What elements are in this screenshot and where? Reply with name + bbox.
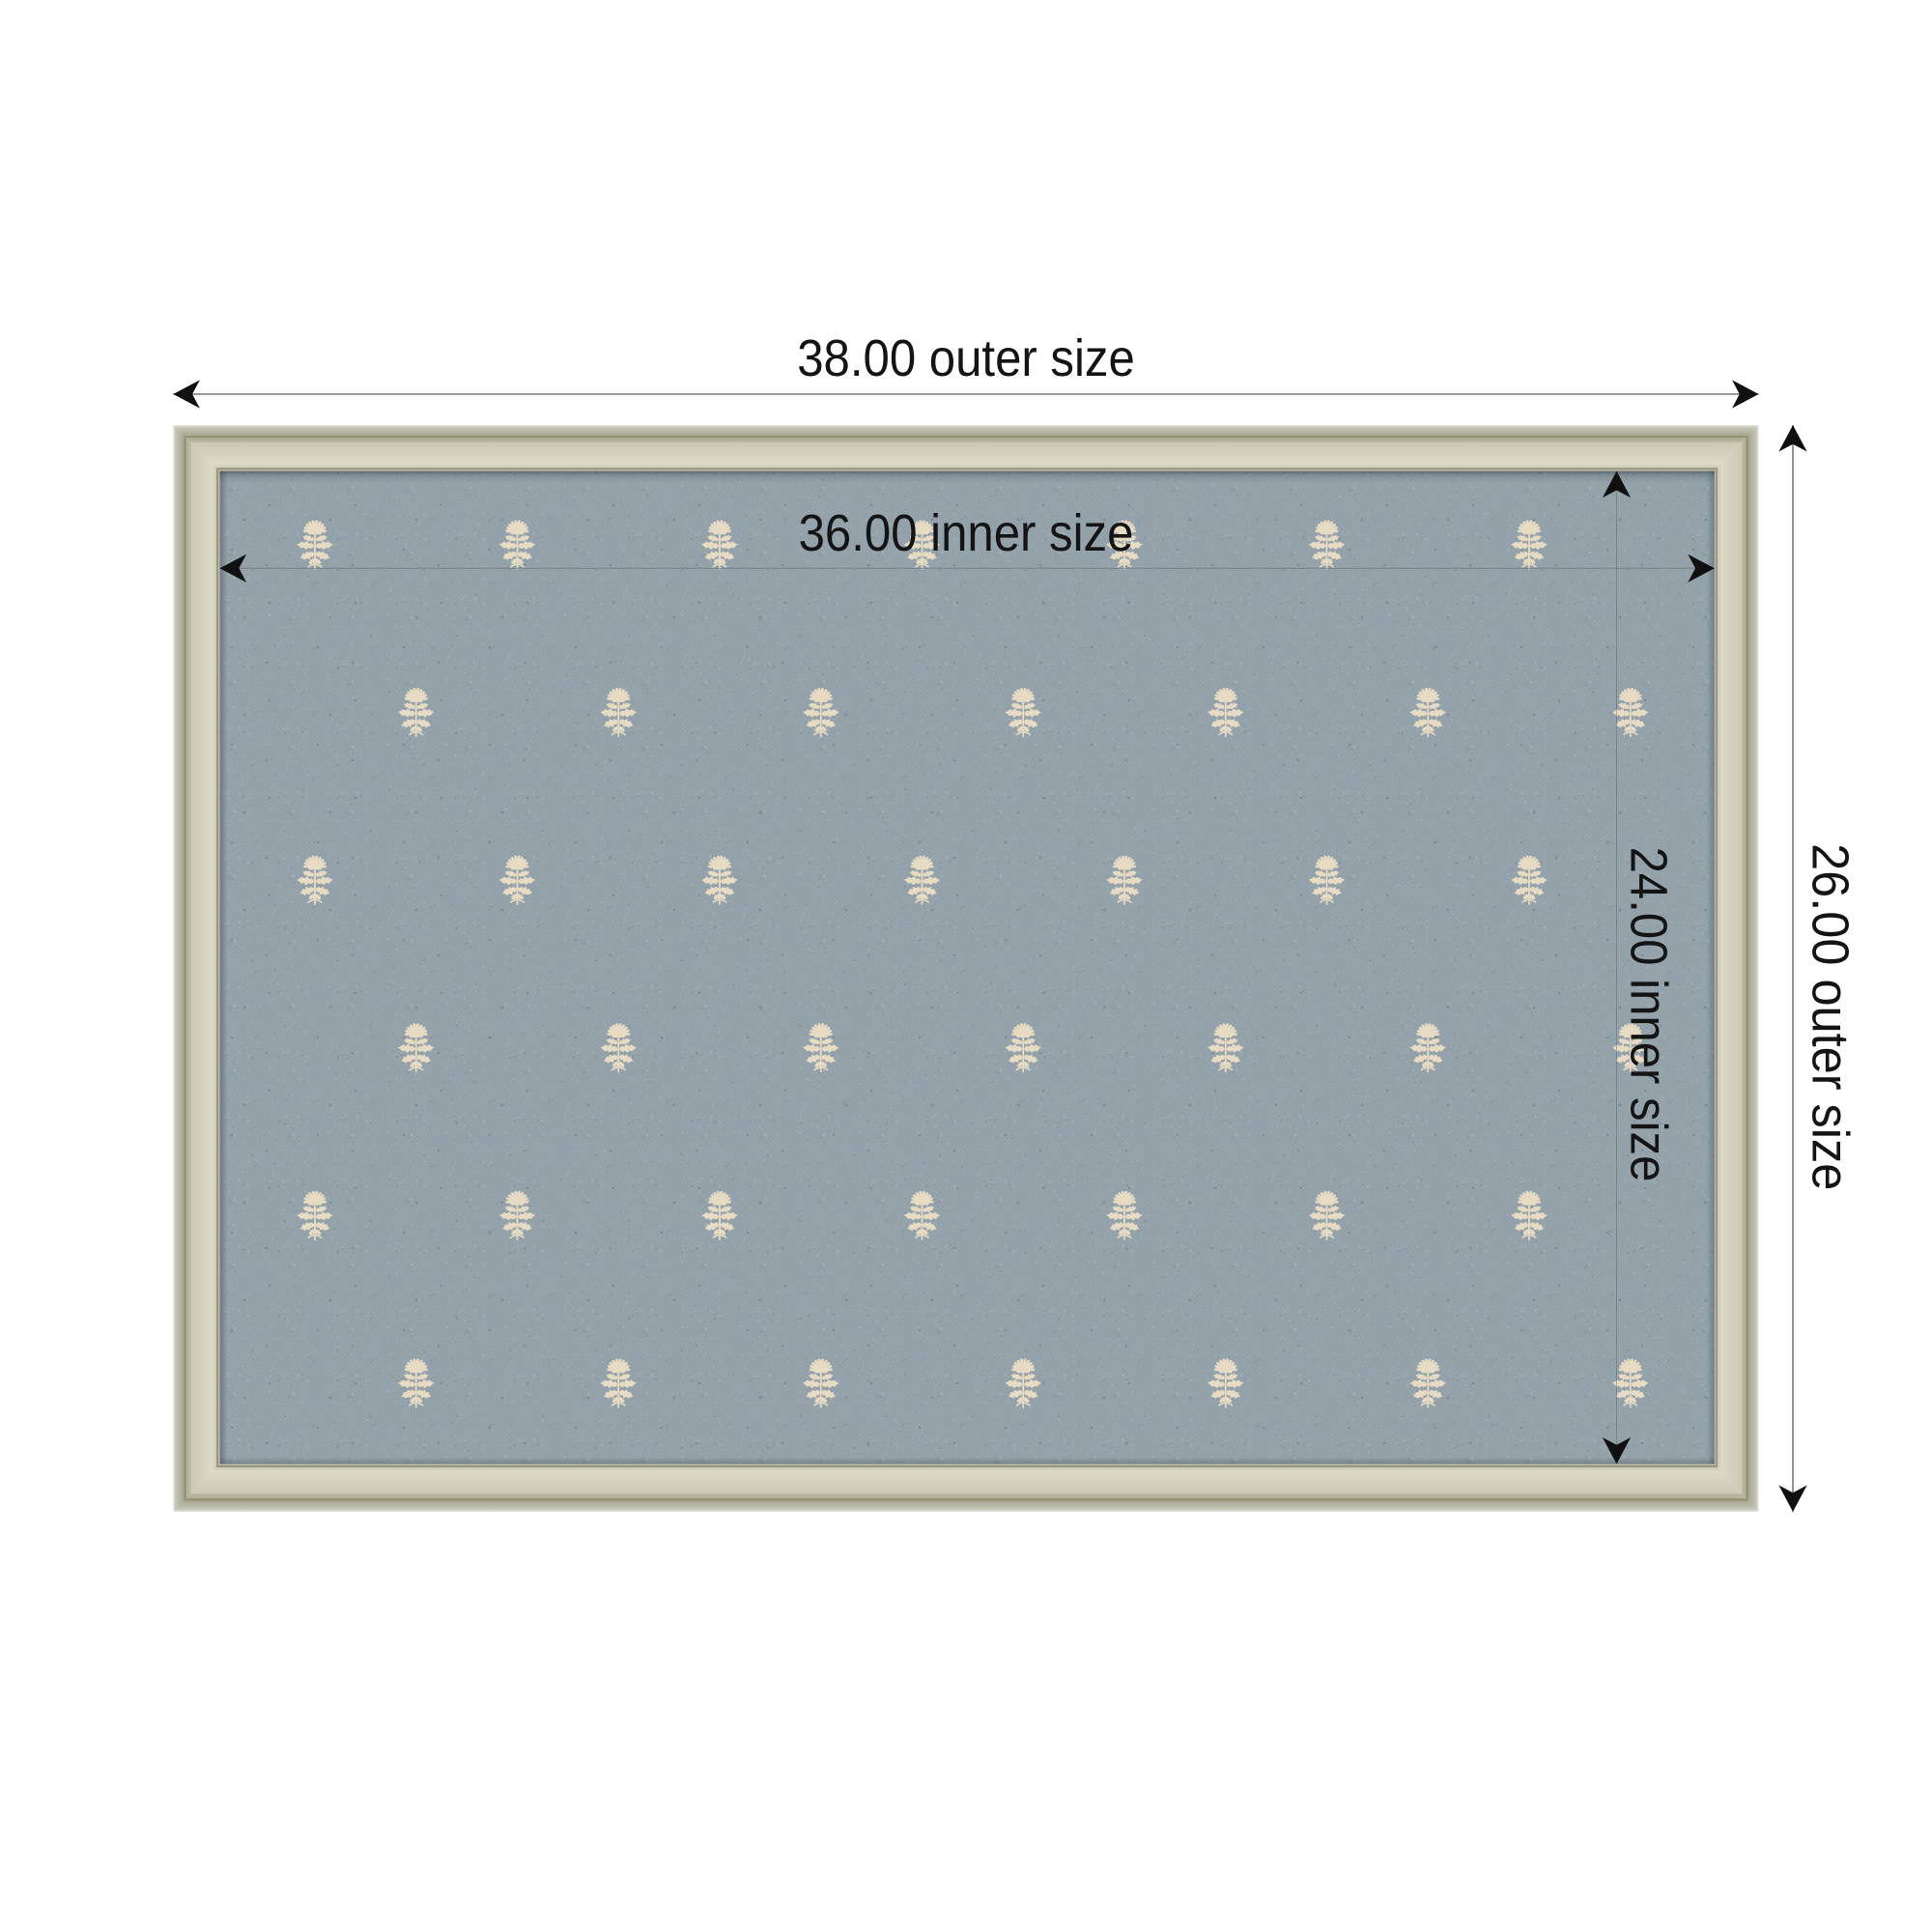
svg-text:24.00 inner size: 24.00 inner size	[1620, 847, 1679, 1182]
svg-text:38.00 outer size: 38.00 outer size	[797, 328, 1135, 387]
svg-text:36.00 inner size: 36.00 inner size	[799, 503, 1134, 562]
svg-text:26.00 outer size: 26.00 outer size	[1801, 843, 1859, 1190]
